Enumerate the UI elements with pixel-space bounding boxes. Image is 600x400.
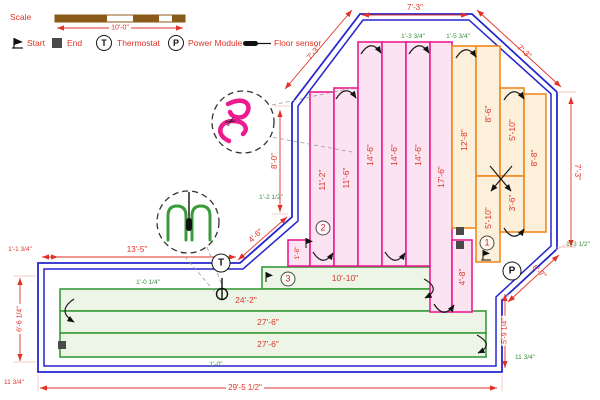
run-label-green-2: 27'-6" [257,318,279,327]
legend-power-label: Power Module [188,39,242,48]
dim-left-top: 1'-1 3/4" [8,247,32,254]
run-label-orange-3: 5'-10" [508,119,517,141]
run-label-orange-5: 8'-8" [530,150,539,167]
run-label-pink-2: 11'-6" [342,167,351,188]
floor-heating-plan: Scale 10'-0" Start End T Thermostat P Po… [0,0,600,400]
run-label-green-3: 27'-6" [257,340,279,349]
run-label-pink-7: 4'-8" [458,269,467,286]
run-label-pink-4: 14'-6" [390,144,399,166]
legend-start-label: Start [27,39,45,48]
dim-right: 7'-3" [573,162,581,182]
zone-number-2: 2 [316,221,331,236]
thermostat-symbol: T [212,254,231,273]
legend-floor-sensor-icon [243,41,271,46]
legend-end-label: End [67,39,82,48]
run-label-orange-0: 12'-8" [460,129,469,151]
subdim-right: 1'-3 1/2" [566,242,590,249]
scale-value: 10'-0" [109,25,131,32]
zone-number-3: 3 [281,272,296,287]
scale-label: Scale [10,13,31,22]
dim-left: 6'-6 1/4" [17,304,24,334]
run-label-pink-6: 17'-6" [437,166,446,188]
run-label-pink-1: 11'-2" [318,169,327,190]
dim-bottom-right: 5'-9 1/4" [502,316,509,346]
subdim-green-top: 1'-0 1/4" [136,280,160,287]
run-label-green-0: 10'-10" [332,274,358,283]
zone-number-1: 1 [480,236,495,251]
run-label-pink-0: 1'-8" [295,247,302,260]
subdim-mid-left: 1'-2 1/2" [259,195,283,202]
dim-left-wall: 13'-5" [127,246,147,254]
subdim-bottom-right: 11 3/4" [515,355,535,362]
legend-power-icon: P [168,35,184,51]
run-label-orange-2: 5'-10" [484,207,493,229]
legend-start-icon [12,38,23,48]
dim-mid-left: 8'-0" [271,153,279,169]
dim-top: 7'-3" [407,4,423,12]
legend-end-icon [52,38,62,48]
legend-thermostat-label: Thermostat [117,39,160,48]
subdim-bottom: 1'-0" [210,362,223,369]
run-label-green-1: 24'-2" [235,296,257,305]
subdim-top-a: 1'-3 3/4" [401,34,425,41]
run-label-pink-5: 14'-6" [414,144,423,166]
legend-thermostat-icon: T [96,35,112,51]
dim-left-bottom: 11 3/4" [4,380,24,387]
run-label-orange-1: 8'-6" [484,106,493,123]
subdim-top-b: 1'-5 3/4" [446,34,470,41]
dim-bottom: 29'-5 1/2" [226,384,264,392]
run-label-orange-4: 3'-6" [508,195,517,212]
power-module-symbol: P [503,262,522,281]
sensor-detail-callout [157,191,222,292]
run-label-pink-3: 14'-6" [366,144,375,166]
